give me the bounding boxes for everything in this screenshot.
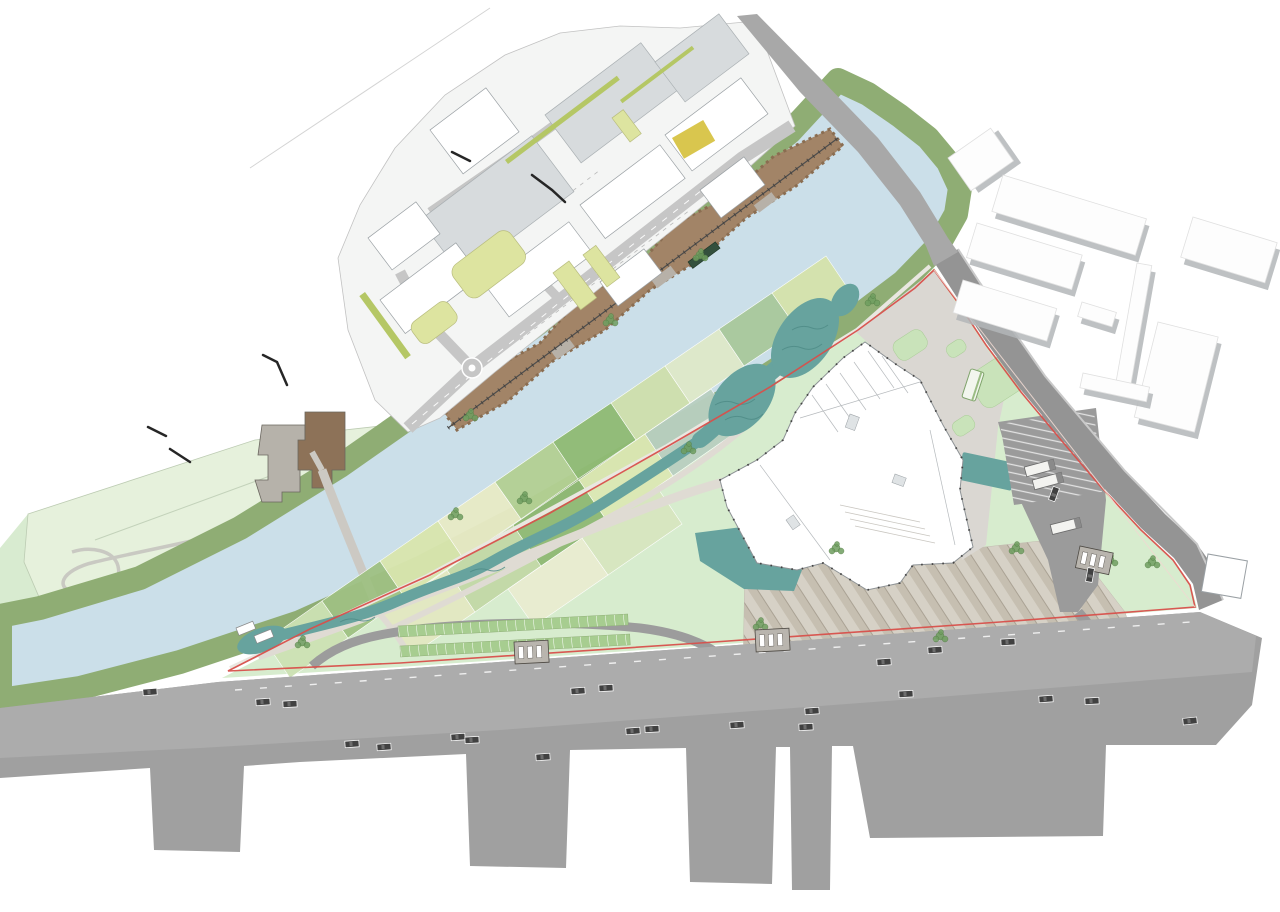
service-kiosk — [755, 628, 790, 652]
car — [283, 700, 297, 707]
car — [799, 723, 813, 730]
service-kiosk — [514, 640, 549, 664]
car — [377, 743, 391, 750]
site-plan-page — [0, 0, 1280, 912]
car — [1039, 695, 1053, 702]
car — [1183, 717, 1198, 725]
car — [536, 753, 550, 760]
car — [730, 721, 744, 728]
car — [877, 658, 891, 665]
car — [626, 727, 640, 734]
car — [1001, 638, 1015, 645]
car — [345, 740, 359, 747]
roundabout-island — [469, 365, 476, 372]
car — [571, 687, 585, 694]
car — [451, 733, 465, 740]
car — [599, 684, 613, 691]
car — [1085, 697, 1099, 704]
car — [645, 725, 659, 732]
car — [256, 698, 270, 705]
white-square-structure — [1201, 554, 1247, 598]
car — [805, 707, 819, 714]
car — [143, 688, 157, 695]
car — [899, 690, 913, 697]
car — [928, 646, 942, 653]
car — [465, 736, 479, 743]
site-plan-canvas — [0, 0, 1280, 912]
